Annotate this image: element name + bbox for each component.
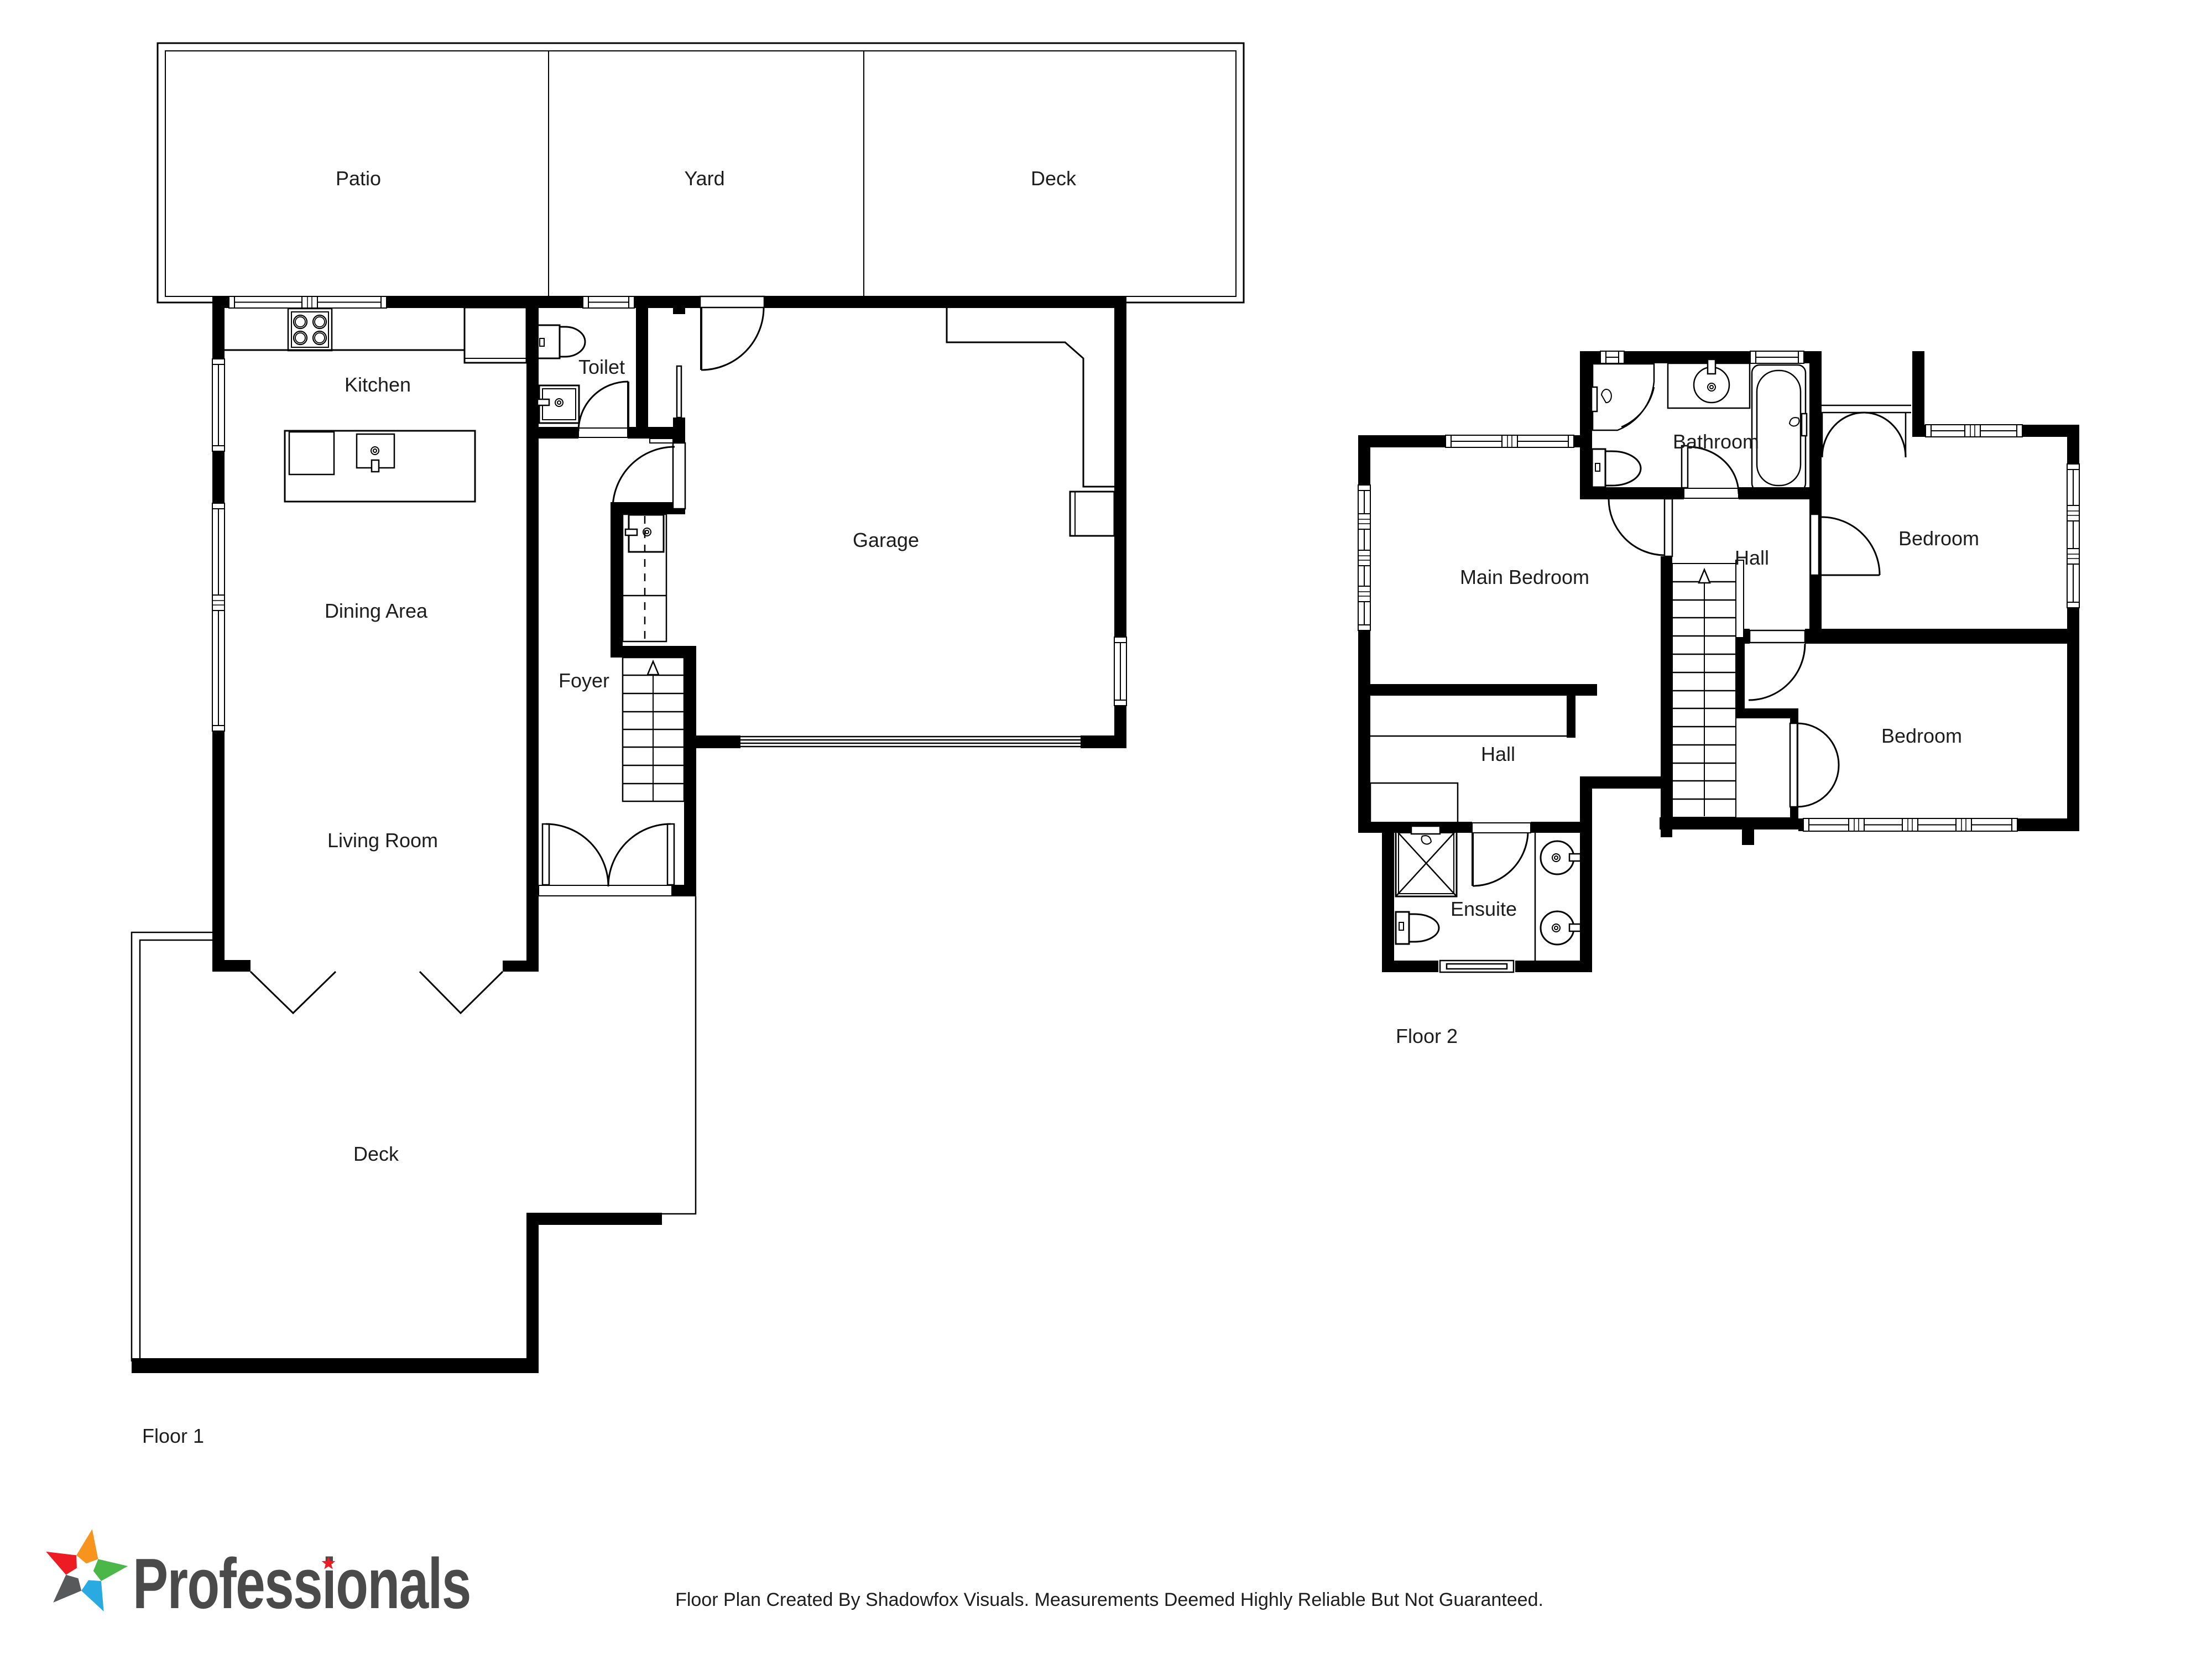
svg-text:Floor 2: Floor 2 (1396, 1025, 1458, 1047)
svg-text:Hall: Hall (1735, 546, 1769, 569)
svg-text:Patio: Patio (336, 167, 381, 190)
svg-text:Dining Area: Dining Area (325, 599, 428, 622)
svg-text:Toilet: Toilet (578, 356, 625, 378)
svg-text:Living Room: Living Room (327, 829, 438, 852)
svg-text:Ensuite: Ensuite (1451, 898, 1517, 920)
svg-text:Bedroom: Bedroom (1881, 724, 1962, 747)
svg-text:Floor 1: Floor 1 (142, 1425, 204, 1447)
svg-text:Bedroom: Bedroom (1898, 527, 1979, 550)
svg-text:Professionals: Professionals (133, 1544, 471, 1624)
svg-text:Bathroom: Bathroom (1673, 430, 1759, 453)
svg-text:Garage: Garage (853, 529, 919, 551)
svg-text:Main Bedroom: Main Bedroom (1460, 566, 1589, 588)
svg-text:Hall: Hall (1481, 743, 1515, 765)
svg-text:Foyer: Foyer (559, 669, 609, 692)
svg-text:Yard: Yard (684, 167, 724, 190)
svg-text:Deck: Deck (353, 1142, 399, 1165)
svg-text:Floor Plan Created By Shadowfo: Floor Plan Created By Shadowfox Visuals.… (675, 1589, 1543, 1610)
svg-text:Kitchen: Kitchen (345, 373, 411, 396)
svg-text:Deck: Deck (1031, 167, 1077, 190)
